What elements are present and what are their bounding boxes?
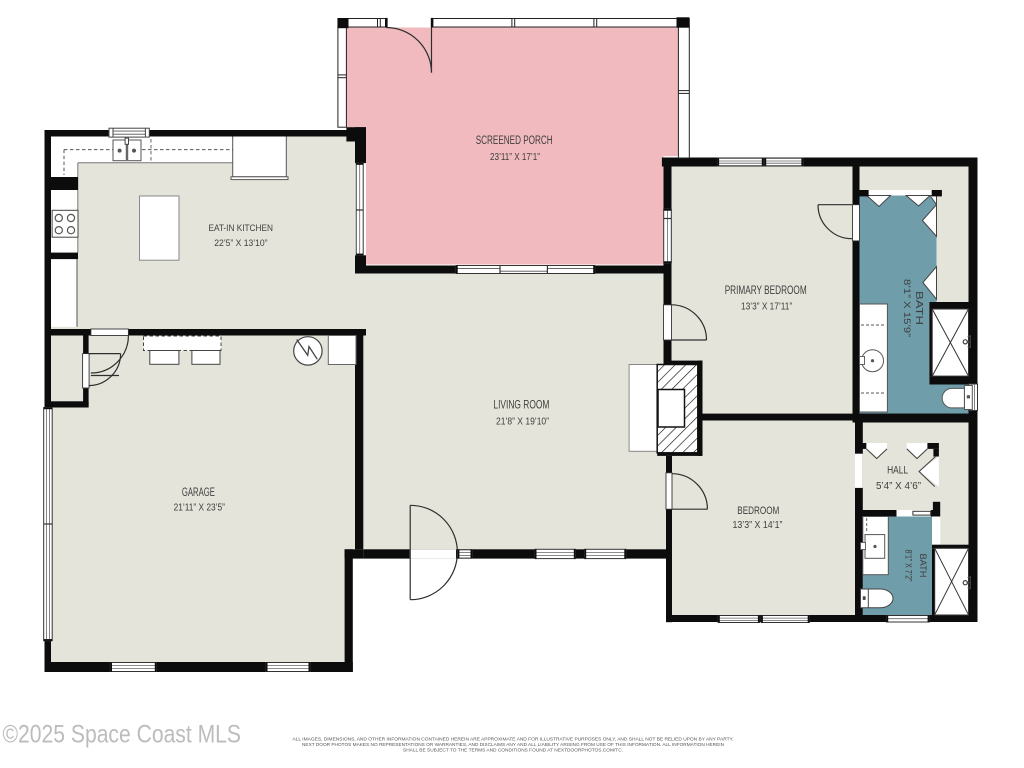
svg-text:22’5” X 13’10”: 22’5” X 13’10”: [214, 238, 267, 248]
svg-text:PRIMARY BEDROOM: PRIMARY BEDROOM: [725, 285, 807, 297]
svg-text:21’8” X 19’10”: 21’8” X 19’10”: [496, 416, 549, 427]
svg-text:21’11” X 23’5”: 21’11” X 23’5”: [174, 503, 225, 514]
svg-text:HALL: HALL: [887, 465, 908, 477]
svg-text:SHALL BE SUBJECT TO THE TERMS: SHALL BE SUBJECT TO THE TERMS AND CONDIT…: [403, 748, 623, 754]
svg-text:©2025 Space Coast MLS: ©2025 Space Coast MLS: [3, 721, 242, 749]
svg-text:8’1” X 7’2”: 8’1” X 7’2”: [903, 550, 913, 582]
svg-text:13’3” X 17’11”: 13’3” X 17’11”: [741, 302, 792, 313]
svg-text:BEDROOM: BEDROOM: [737, 505, 779, 517]
svg-text:GARAGE: GARAGE: [182, 487, 215, 499]
svg-text:8’1” X 15’9”: 8’1” X 15’9”: [901, 279, 912, 337]
svg-text:13’3” X 14’1”: 13’3” X 14’1”: [733, 520, 783, 531]
svg-text:NEXT DOOR PHOTOS MAKES NO REPR: NEXT DOOR PHOTOS MAKES NO REPRESENTATION…: [302, 742, 724, 748]
svg-text:23’11” X 17’1”: 23’11” X 17’1”: [490, 152, 540, 163]
svg-text:EAT-IN KITCHEN: EAT-IN KITCHEN: [208, 223, 273, 233]
svg-text:BATH: BATH: [913, 291, 924, 325]
svg-text:SCREENED PORCH: SCREENED PORCH: [476, 135, 553, 147]
svg-text:LIVING ROOM: LIVING ROOM: [493, 398, 549, 412]
svg-text:BATH: BATH: [918, 554, 928, 578]
svg-text:ALL IMAGES, DIMENSIONS, AND OT: ALL IMAGES, DIMENSIONS, AND OTHER INFORM…: [293, 736, 734, 742]
svg-text:5’4” X 4’6”: 5’4” X 4’6”: [876, 481, 921, 492]
